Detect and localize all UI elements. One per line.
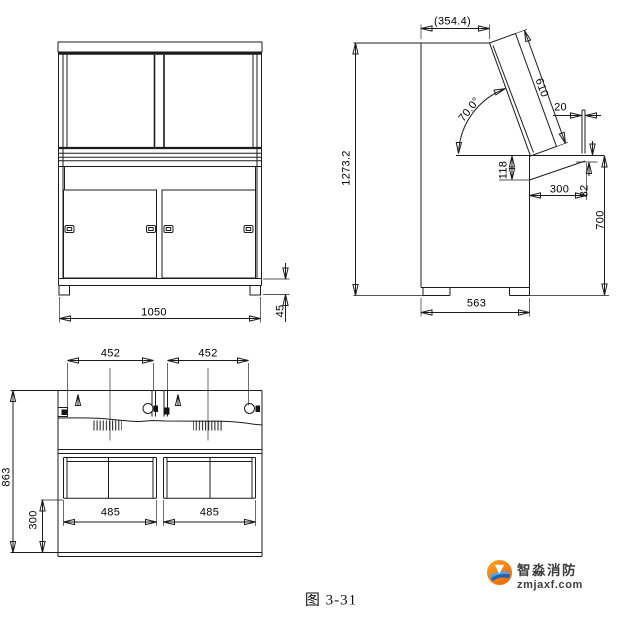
zmjaxf-logo-icon — [486, 559, 513, 586]
dim-top-right-box-width: 485 — [200, 507, 219, 518]
dim-side-desk-drop: 118 — [498, 160, 509, 178]
dim-side-desk-depth: 300 — [550, 184, 569, 195]
top-view-dimensions — [13, 361, 256, 553]
dim-side-overall-depth: 563 — [467, 299, 486, 310]
side-view — [354, 34, 610, 296]
watermark-domain-text: zmjaxf.com — [517, 579, 583, 591]
dim-front-plinth-height: 45 — [275, 304, 286, 317]
dim-side-desk-height: 700 — [596, 210, 607, 229]
dim-side-back-gap: 20 — [554, 103, 567, 114]
watermark-brand-text: 智淼消防 — [517, 559, 583, 579]
drawing-linework — [0, 0, 620, 617]
technical-drawing-page: 1050 45 (354.4) 1273.2 610 70.0° 20 118 … — [0, 0, 620, 617]
dim-top-left-box-width: 485 — [101, 507, 120, 518]
side-view-dimensions — [356, 25, 605, 317]
dim-side-overall-height: 1273.2 — [342, 150, 353, 185]
top-view — [11, 368, 263, 557]
watermark-logo: 智淼消防 zmjaxf.com — [486, 559, 583, 591]
dim-top-right-door-width: 452 — [198, 349, 217, 360]
dim-side-desk-edge: 32 — [579, 185, 590, 198]
dim-top-overall-depth: 863 — [2, 467, 13, 486]
dim-front-overall-width: 1050 — [141, 308, 167, 319]
dim-side-top-depth: (354.4) — [434, 16, 471, 27]
figure-caption: 图 3-31 — [305, 594, 357, 609]
dim-top-left-door-width: 452 — [101, 349, 120, 360]
front-view — [58, 42, 262, 295]
dim-top-base-depth: 300 — [28, 510, 39, 529]
